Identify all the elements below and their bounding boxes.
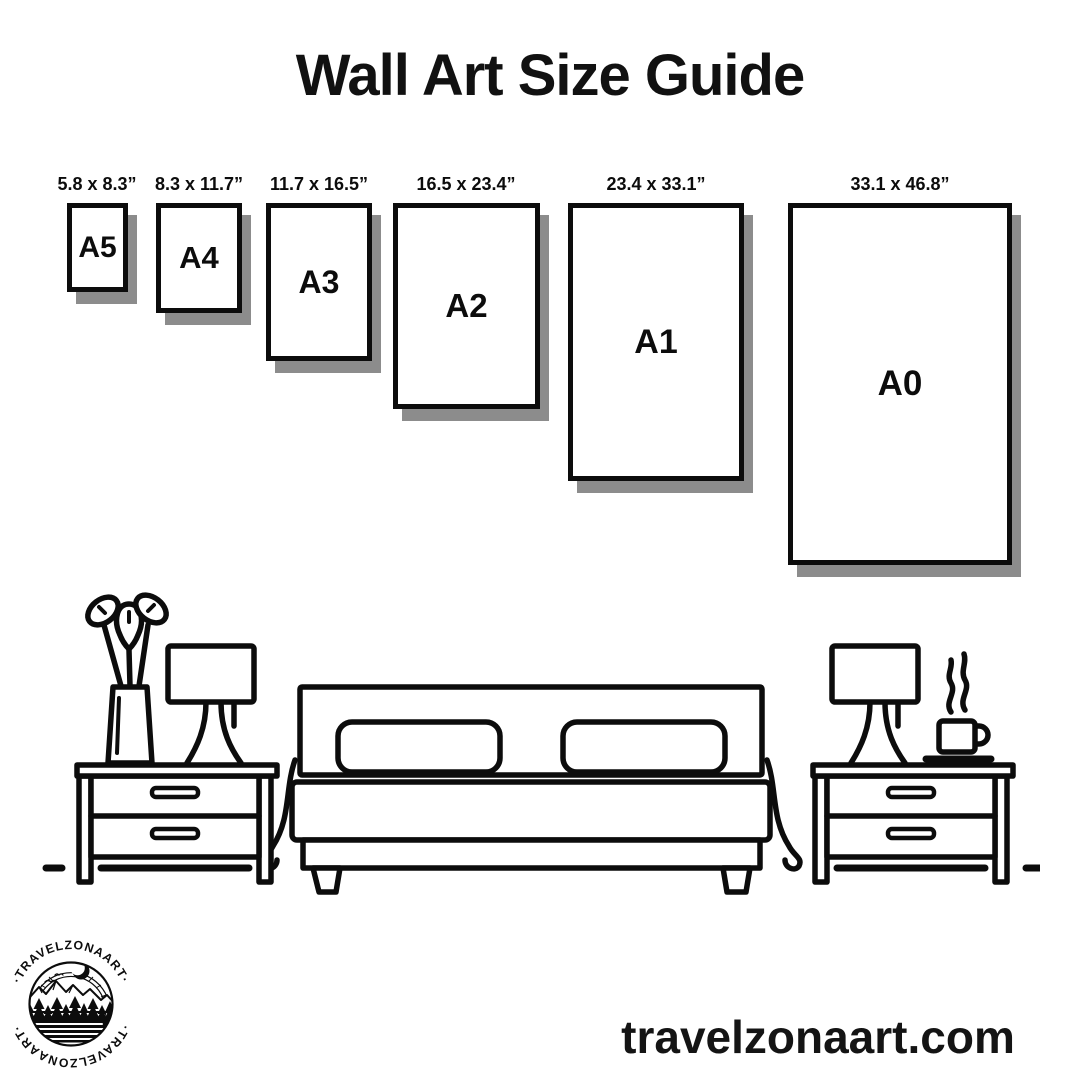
size-name-a0: A0 [878, 364, 923, 404]
pillow-icon [338, 722, 500, 772]
size-name-a4: A4 [179, 240, 219, 276]
poster-frame-a5: A5 [67, 203, 128, 292]
coffee-cup-icon [926, 654, 991, 759]
mountain-logo-icon [22, 961, 118, 1048]
plant-vase-icon [83, 589, 172, 763]
size-dimensions-a3: 11.7 x 16.5” [270, 174, 368, 195]
bedroom-illustration [40, 585, 1040, 900]
page-title: Wall Art Size Guide [296, 42, 804, 109]
poster-frame-a1: A1 [568, 203, 744, 481]
website-url: travelzonaart.com [621, 1010, 1015, 1064]
steam-icon [963, 654, 967, 710]
size-name-a3: A3 [299, 264, 340, 301]
brand-logo-badge: ·TRAVELZONAART· ·TRAVELZONAART· [0, 938, 142, 1080]
steam-icon [949, 660, 953, 712]
poster-frame-a4: A4 [156, 203, 242, 313]
poster-frame-a0: A0 [788, 203, 1012, 565]
size-name-a2: A2 [445, 287, 487, 325]
size-name-a1: A1 [634, 323, 677, 362]
size-dimensions-a4: 8.3 x 11.7” [155, 174, 243, 195]
pillow-icon [563, 722, 725, 772]
poster-frame-a2: A2 [393, 203, 540, 409]
size-name-a5: A5 [78, 231, 116, 265]
nightstand-right-icon [813, 765, 1013, 882]
wall-art-size-guide-poster: Wall Art Size Guide 5.8 x 8.3” 8.3 x 11.… [0, 0, 1080, 1080]
size-dimensions-a2: 16.5 x 23.4” [416, 174, 515, 195]
size-dimensions-a5: 5.8 x 8.3” [57, 174, 136, 195]
lamp-left-icon [168, 646, 254, 763]
bed-icon [262, 687, 800, 892]
lamp-right-icon [832, 646, 918, 763]
size-dimensions-a1: 23.4 x 33.1” [606, 174, 705, 195]
poster-frame-a3: A3 [266, 203, 372, 361]
nightstand-left-icon [77, 765, 277, 882]
size-dimensions-a0: 33.1 x 46.8” [850, 174, 949, 195]
